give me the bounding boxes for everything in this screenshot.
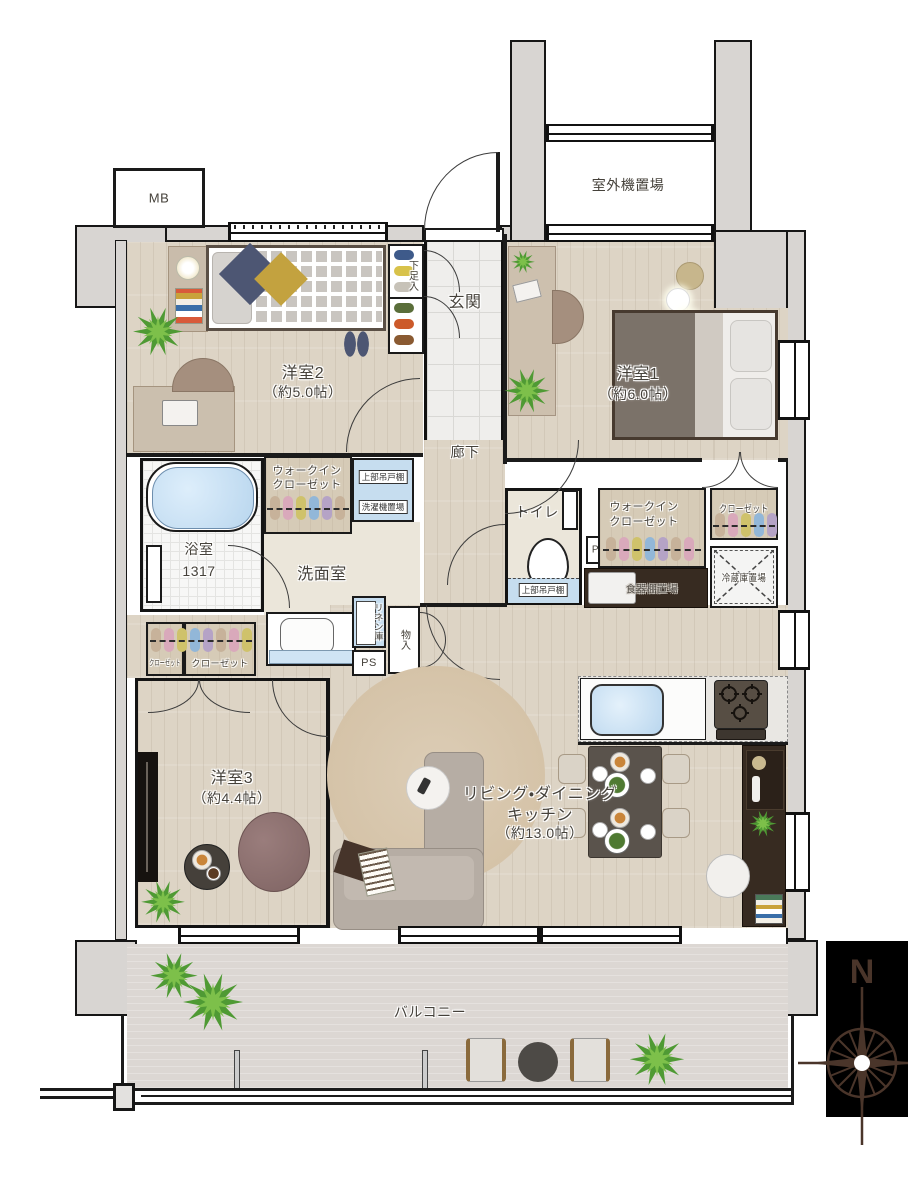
room1-pillow-1	[730, 320, 772, 372]
room1-bed-fold	[695, 313, 723, 437]
bath-size-label: 1317	[182, 563, 215, 579]
shoe-pair-5	[394, 319, 414, 329]
room2-size-label: （約5.0帖）	[264, 382, 343, 402]
balcony-divider-1	[234, 1050, 240, 1090]
balcony-table	[518, 1042, 558, 1082]
shoe-pair-4	[394, 303, 414, 313]
room2-north-window-hatch	[234, 225, 382, 229]
side-round-table	[706, 854, 750, 898]
cupboard-label: 食器棚置場	[626, 581, 679, 596]
balcony-chair-1	[466, 1038, 506, 1082]
room3-size-label: （約4.4帖）	[193, 788, 272, 808]
bath-label: 浴室	[185, 539, 214, 559]
fridge-label: 冷蔵庫置場	[722, 570, 767, 585]
bath-niche	[146, 545, 162, 603]
wic-left-label-2: クローゼット	[273, 476, 342, 492]
room3-label: 洋室3	[211, 764, 253, 788]
cabinet-plant-icon	[744, 810, 782, 840]
entry-door-arc	[424, 152, 498, 230]
cabinet-bottle	[752, 776, 760, 802]
ldk-south-window-1	[398, 926, 540, 944]
wall-left	[115, 240, 127, 940]
coffee-table	[406, 766, 450, 810]
wall-tower-left	[510, 40, 546, 242]
room3-tv-panel	[138, 752, 158, 882]
balcony-plant-icon-2	[180, 972, 246, 1038]
room1-plant-icon	[504, 368, 550, 418]
closet-small-left-label: クローゼット	[149, 658, 181, 669]
room3-armchair	[238, 812, 310, 892]
wic-right-label-2: クローゼット	[610, 513, 679, 529]
bread-plate-2	[610, 808, 630, 828]
wic-left-rail	[267, 508, 349, 510]
room1-north-window	[546, 224, 714, 242]
washroom-label: 洗面室	[297, 560, 347, 584]
kitchen-sink	[590, 684, 664, 736]
room3-tv-line	[146, 762, 148, 872]
balcony-rail-1	[133, 1088, 793, 1091]
balcony-rail-3	[133, 1102, 793, 1105]
closet-right-rail	[713, 525, 775, 527]
dining-chair-4	[662, 808, 690, 838]
cabinet-lamp	[752, 756, 766, 770]
wic-right-rail	[603, 549, 701, 551]
stove-burners-icon	[714, 680, 766, 727]
bathtub-water	[152, 467, 254, 529]
vanity-sink	[280, 618, 334, 654]
drain-box	[113, 1083, 135, 1111]
corridor-label: 廊下	[451, 442, 480, 462]
toilet-shelf	[562, 490, 578, 530]
balcony-rail-left	[121, 1015, 124, 1087]
room2-label: 洋室2	[282, 359, 324, 383]
kitchen-east-window	[778, 610, 810, 670]
floor-plan: MB 室外機置場 浴室 1317 ウォークイン クローゼット 上部吊戸棚 洗濯機…	[0, 0, 908, 1200]
room2-lamp	[176, 256, 200, 280]
compass-north-label: N	[850, 953, 875, 991]
balcony-divider-2	[422, 1050, 428, 1090]
shoe-pair-1	[394, 250, 414, 260]
plate-4	[640, 824, 656, 840]
linen-label: リネン庫	[373, 603, 386, 641]
ldk-label-2: キッチン	[507, 801, 573, 825]
storage-label: 物入	[397, 630, 412, 651]
balcony-label: バルコニー	[394, 1002, 466, 1022]
room3-plant-icon	[136, 880, 190, 928]
meter-box-label: MB	[149, 191, 170, 206]
dining-chair-3	[662, 754, 690, 784]
drain-line-1	[40, 1088, 115, 1091]
room1-pendant-shade	[676, 262, 704, 290]
wic-right-label-1: ウォークイン	[610, 498, 679, 514]
balcony-rail-2	[141, 1095, 793, 1097]
cabinet-books	[755, 894, 783, 924]
closet-small-right-label: クローゼット	[191, 657, 248, 670]
genkan-threshold	[424, 228, 504, 242]
shoe-pair-6	[394, 335, 414, 345]
wall-room1-south-b	[778, 458, 788, 462]
room1-closet-door-arc-2	[740, 452, 778, 488]
wall-tower-right	[714, 40, 752, 242]
room1-label: 洋室1	[617, 360, 659, 384]
closet-small-rail	[150, 640, 252, 642]
shoe-cabinet-label: 下足入	[405, 260, 420, 292]
balcony-plant-icon-3	[626, 1032, 688, 1092]
drain-line-2	[40, 1096, 115, 1099]
washer-label: 洗濯機置場	[359, 500, 408, 514]
balcony-chair-2	[570, 1038, 610, 1082]
room1-plant-small-icon	[510, 250, 536, 276]
ldk-south-window-2	[540, 926, 682, 944]
toilet-upper-cabinet-label: 上部吊戸棚	[519, 583, 568, 597]
room2-plant-icon	[133, 306, 183, 362]
room1-pillow-2	[730, 378, 772, 430]
room2-laptop	[162, 400, 198, 426]
shoe-cabinet-divider	[390, 297, 422, 299]
room3-south-window	[178, 926, 300, 944]
salad-plate-2	[604, 828, 630, 854]
room1-pendant-bulb-1	[666, 288, 690, 312]
bread-plate-1	[610, 752, 630, 772]
upper-cabinet-laundry-label: 上部吊戸棚	[359, 470, 408, 484]
room1-east-window	[778, 340, 810, 420]
plate-2	[640, 768, 656, 784]
outdoor-unit-label: 室外機置場	[592, 175, 665, 195]
room2-slippers	[343, 330, 369, 358]
stove-grill	[716, 729, 766, 740]
ps-left-label: PS	[361, 657, 377, 669]
wall-room1-west	[503, 234, 507, 464]
vanity-counter	[269, 650, 355, 664]
outdoor-window	[546, 124, 714, 142]
compass: N	[790, 935, 908, 1160]
room1-closet-door-arc-1	[702, 452, 740, 488]
room3-cup	[206, 866, 221, 881]
room1-size-label: （約6.0帖）	[599, 384, 678, 404]
ldk-label-3: （約13.0帖）	[496, 823, 583, 843]
